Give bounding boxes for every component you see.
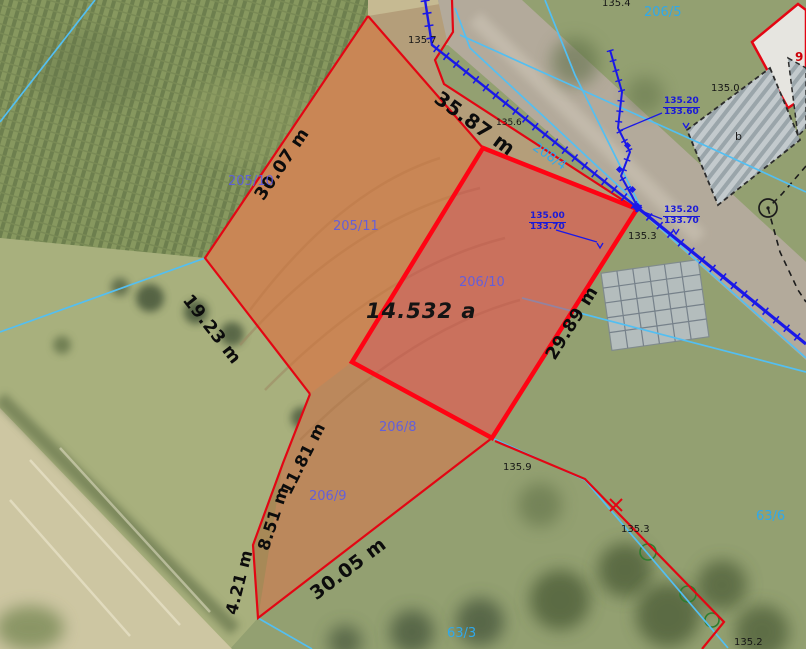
solar-array	[601, 260, 709, 351]
map-canvas[interactable]: 35.87 m 30.07 m 19.23 m 11.81 m 8.51 m 4…	[0, 0, 806, 649]
aerial-imagery	[0, 0, 806, 649]
